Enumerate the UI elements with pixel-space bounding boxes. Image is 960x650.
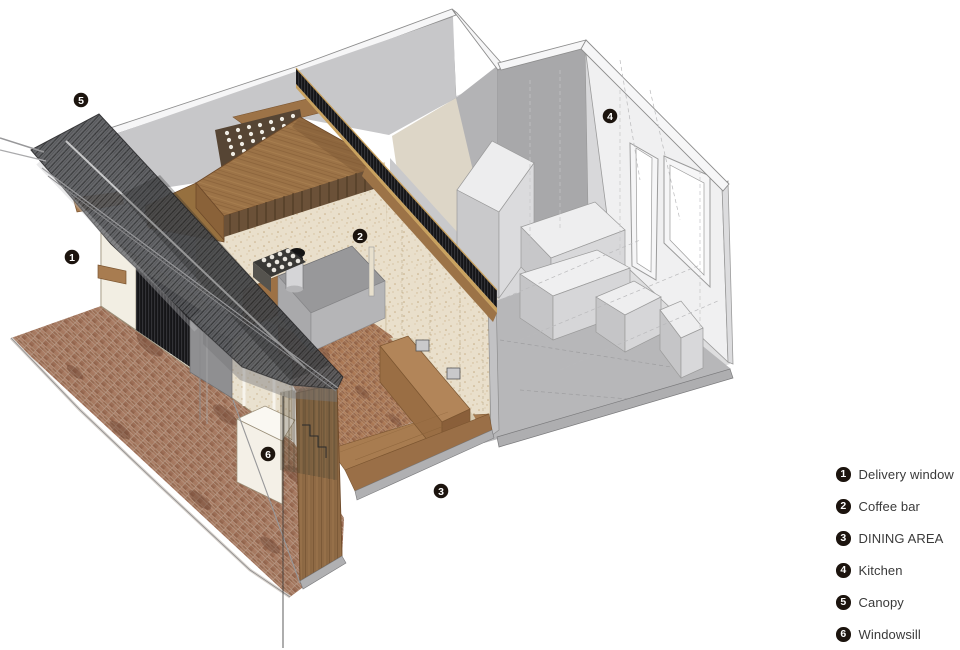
svg-text:5: 5 <box>78 95 84 107</box>
svg-text:1: 1 <box>69 252 75 264</box>
svg-text:2: 2 <box>357 231 363 243</box>
svg-text:6: 6 <box>265 449 271 461</box>
svg-text:3: 3 <box>438 486 444 498</box>
svg-text:4: 4 <box>607 111 613 123</box>
